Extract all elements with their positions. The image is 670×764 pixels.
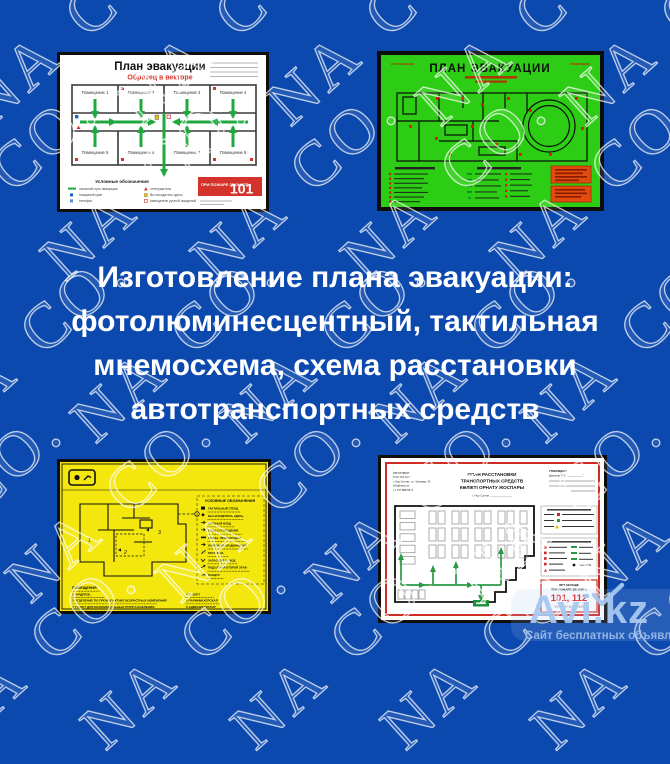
svg-text:ГЛАВНЫЙ ВХОД: ГЛАВНЫЙ ВХОД [208,521,231,525]
legend-left-block [389,167,435,203]
svg-text:Помещение 1: Помещение 1 [82,90,109,95]
headline-line-3: мнемосхема, схема расстановки [0,344,670,388]
plan-vector-sample-image: План эвакуации Образец в векторе Помещен… [57,52,269,212]
parking-stalls [400,511,527,564]
maker-block: ИЗГОТОВИЛ: ТОО "NA CO." г. Нур-Султан, у… [393,471,431,492]
svg-text:УТВЕРЖДАЮ: УТВЕРЖДАЮ [549,469,567,473]
legend-box-symbols [541,538,597,576]
svg-text:ИЗГОТОВИЛ:: ИЗГОТОВИЛ: [393,471,410,475]
legend-title: УСЛОВНЫЕ ОБОЗНАЧЕНИЯ [205,499,256,503]
svg-text:4 ТУАЛЕТ: 4 ТУАЛЕТ [186,592,200,596]
svg-text:основной путь эвакуации: основной путь эвакуации [79,187,118,191]
route-arrowheads [398,547,504,602]
svg-text:3 ТУАЛЕТ ДЛЯ МАЛОМОБИЛЬНЫХ ГР: 3 ТУАЛЕТ ДЛЯ МАЛОМОБИЛЬНЫХ ГРУПП НАСЕЛЕН… [72,605,154,609]
rooms-list: 1 ГАРДЕРОБ 2 ОТДЕЛЕНИЕ ПО ПРОФИЛАКТИКЕ В… [72,592,218,608]
avi-kz-wordmark: Avi.kz [529,588,649,633]
svg-text:Помещение 2: Помещение 2 [128,90,155,95]
svg-text:извещатель ручной пожарный: извещатель ручной пожарный [150,199,196,203]
checkmark-icon [591,582,625,608]
promo-image: { "page": { "background_color": "#0c49ae… [0,0,670,670]
svg-text:ПОДЪЕМ НА ВТОРОЙ ЭТАЖ: ПОДЪЕМ НА ВТОРОЙ ЭТАЖ [208,566,247,570]
avi-kz-tagline: Сайт бесплатных объявлений [525,630,670,642]
plan-vector-subtitle: Образец в векторе [127,74,192,82]
svg-text:6 АДМИНИСТРАТОР: 6 АДМИНИСТРАТОР [186,605,216,609]
svg-text:1 ГАРДЕРОБ: 1 ГАРДЕРОБ [72,592,91,596]
svg-text:г. Нур-Султан, ул. Кунаева, 33: г. Нур-Султан, ул. Кунаева, 33 [393,479,431,483]
agreed-label: СОГЛАСОВАНО [391,62,415,66]
svg-text:ТАКТИЛЬНЫЙ СТЕНД: ТАКТИЛЬНЫЙ СТЕНД [208,507,238,511]
bottom-stalls [398,590,425,599]
svg-text:огнетушитель: огнетушитель [150,187,171,191]
plan-photoluminescent-image: СОГЛАСОВАНО УТВЕРЖДАЮ ПЛАН ЭВАКУАЦИИ [377,51,604,211]
svg-text:Помещение 5: Помещение 5 [82,150,109,155]
svg-text:1: 1 [88,538,91,544]
plan-photolum-title: ПЛАН ЭВАКУАЦИИ [429,63,550,75]
svg-text:пожарный кран: пожарный кран [79,193,103,197]
svg-text:телефон: телефон [79,199,93,203]
svg-text:+7 707 888 9600: +7 707 888 9600 [393,488,414,492]
legend-middle-block [467,167,532,199]
svg-text:НАПРАВЛЕНИЯ ДВИЖЕНИЯ: НАПРАВЛЕНИЯ ДВИЖЕНИЯ [208,544,247,548]
headline-line-1: Изготовление плана эвакуации: [0,256,670,300]
exit-sign [473,600,489,607]
approval-lines [210,63,258,77]
legend-icons [201,507,206,576]
svg-text:Помещение 7: Помещение 7 [174,150,201,155]
svg-text:ПАНДУС: ПАНДУС [208,573,220,577]
svg-text:2 ОТДЕЛЕНИЕ ПО ПРОФИЛАКТИКЕ В: 2 ОТДЕЛЕНИЕ ПО ПРОФИЛАКТИКЕ ВОЗРАСТНЫХ И… [72,599,167,603]
emergency-orange-boxes [551,166,591,202]
plan-vector-title: План эвакуации [114,61,205,73]
svg-text:Помещение 8: Помещение 8 [220,150,247,155]
svg-text:ВХОД В ПОМЕЩЕНИЕ: ВХОД В ПОМЕЩЕНИЕ [208,529,239,533]
svg-text:КӨЛІКТІ ОРНАТУ ЖОСПАРЫ: КӨЛІКТІ ОРНАТУ ЖОСПАРЫ [460,485,525,490]
tactile-symbols-box [69,470,95,485]
approved-label: УТВЕРЖДАЮ [570,62,590,66]
legend-title: Условные обозначения [95,178,149,184]
headline-line-4: автотранспортных средств [0,388,670,432]
svg-text:Помещение 4: Помещение 4 [220,90,247,95]
svg-text:info@naco.kz: info@naco.kz [393,484,410,488]
approval-block: УТВЕРЖДАЮ Директор ТОО "___________" [549,469,595,491]
svg-text:г. Нур-Султан, ______________: г. Нур-Султан, ______________ [472,494,512,498]
svg-text:ВЫ НАХОДИТЕСЬ ЗДЕСЬ: ВЫ НАХОДИТЕСЬ ЗДЕСЬ [208,514,244,518]
svg-text:ЗАПАСНОЙ ВЫХОД: ЗАПАСНОЙ ВЫХОД [208,558,235,562]
svg-text:ПЛАН РАССТАНОВКИ: ПЛАН РАССТАНОВКИ [468,472,517,477]
plan-parking-title: ПЛАН РАССТАНОВКИ ТРАНСПОРТНЫХ СРЕДСТВ КӨ… [460,472,525,498]
svg-text:СТЕНЫ, ПЕРЕГОРОДКИ: СТЕНЫ, ПЕРЕГОРОДКИ [208,536,241,540]
floorplan-walls [80,504,194,576]
floorplan-walls [397,93,587,161]
fire-call-box: ПРИ ПОЖАРЕ ЗВОНИТЕ 101 [198,177,262,205]
subtitle-lines [465,76,517,83]
headline: Изготовление плана эвакуации: фотолюмине… [0,256,670,432]
svg-text:3: 3 [158,530,161,536]
legend-items: основной путь эвакуации пожарный кран те… [68,187,196,203]
avi-kz-logo: Avi.kz Сайт бесплатных объявлений [505,586,670,646]
svg-text:Вы находитесь здесь: Вы находитесь здесь [150,193,183,197]
rooms-title: ПОМЕЩЕНИЯ [72,586,97,590]
plan-tactile-image: 123 УСЛОВНЫЕ ОБОЗНАЧЕНИЯ ТАКТИЛЬНЫЙ СТЕН… [57,459,271,614]
svg-text:101: 101 [230,181,254,197]
svg-text:5 ПАРИКМАХЕРСКАЯ: 5 ПАРИКМАХЕРСКАЯ [186,599,218,603]
svg-text:ЛЕСТНИЦА: ЛЕСТНИЦА [208,551,224,555]
svg-text:Директор ТОО "___________": Директор ТОО "___________" [549,474,584,477]
svg-text:Помещение 3: Помещение 3 [174,90,201,95]
legend-box-vehicles [541,506,597,534]
headline-line-2: фотолюминесцентный, тактильная [0,300,670,344]
svg-text:ТРАНСПОРТНЫХ СРЕДСТВ: ТРАНСПОРТНЫХ СРЕДСТВ [461,479,524,484]
svg-text:2: 2 [123,550,127,556]
svg-text:ТОО "NA CO.": ТОО "NA CO." [393,475,411,479]
svg-text:Помещение 6: Помещение 6 [128,150,155,155]
